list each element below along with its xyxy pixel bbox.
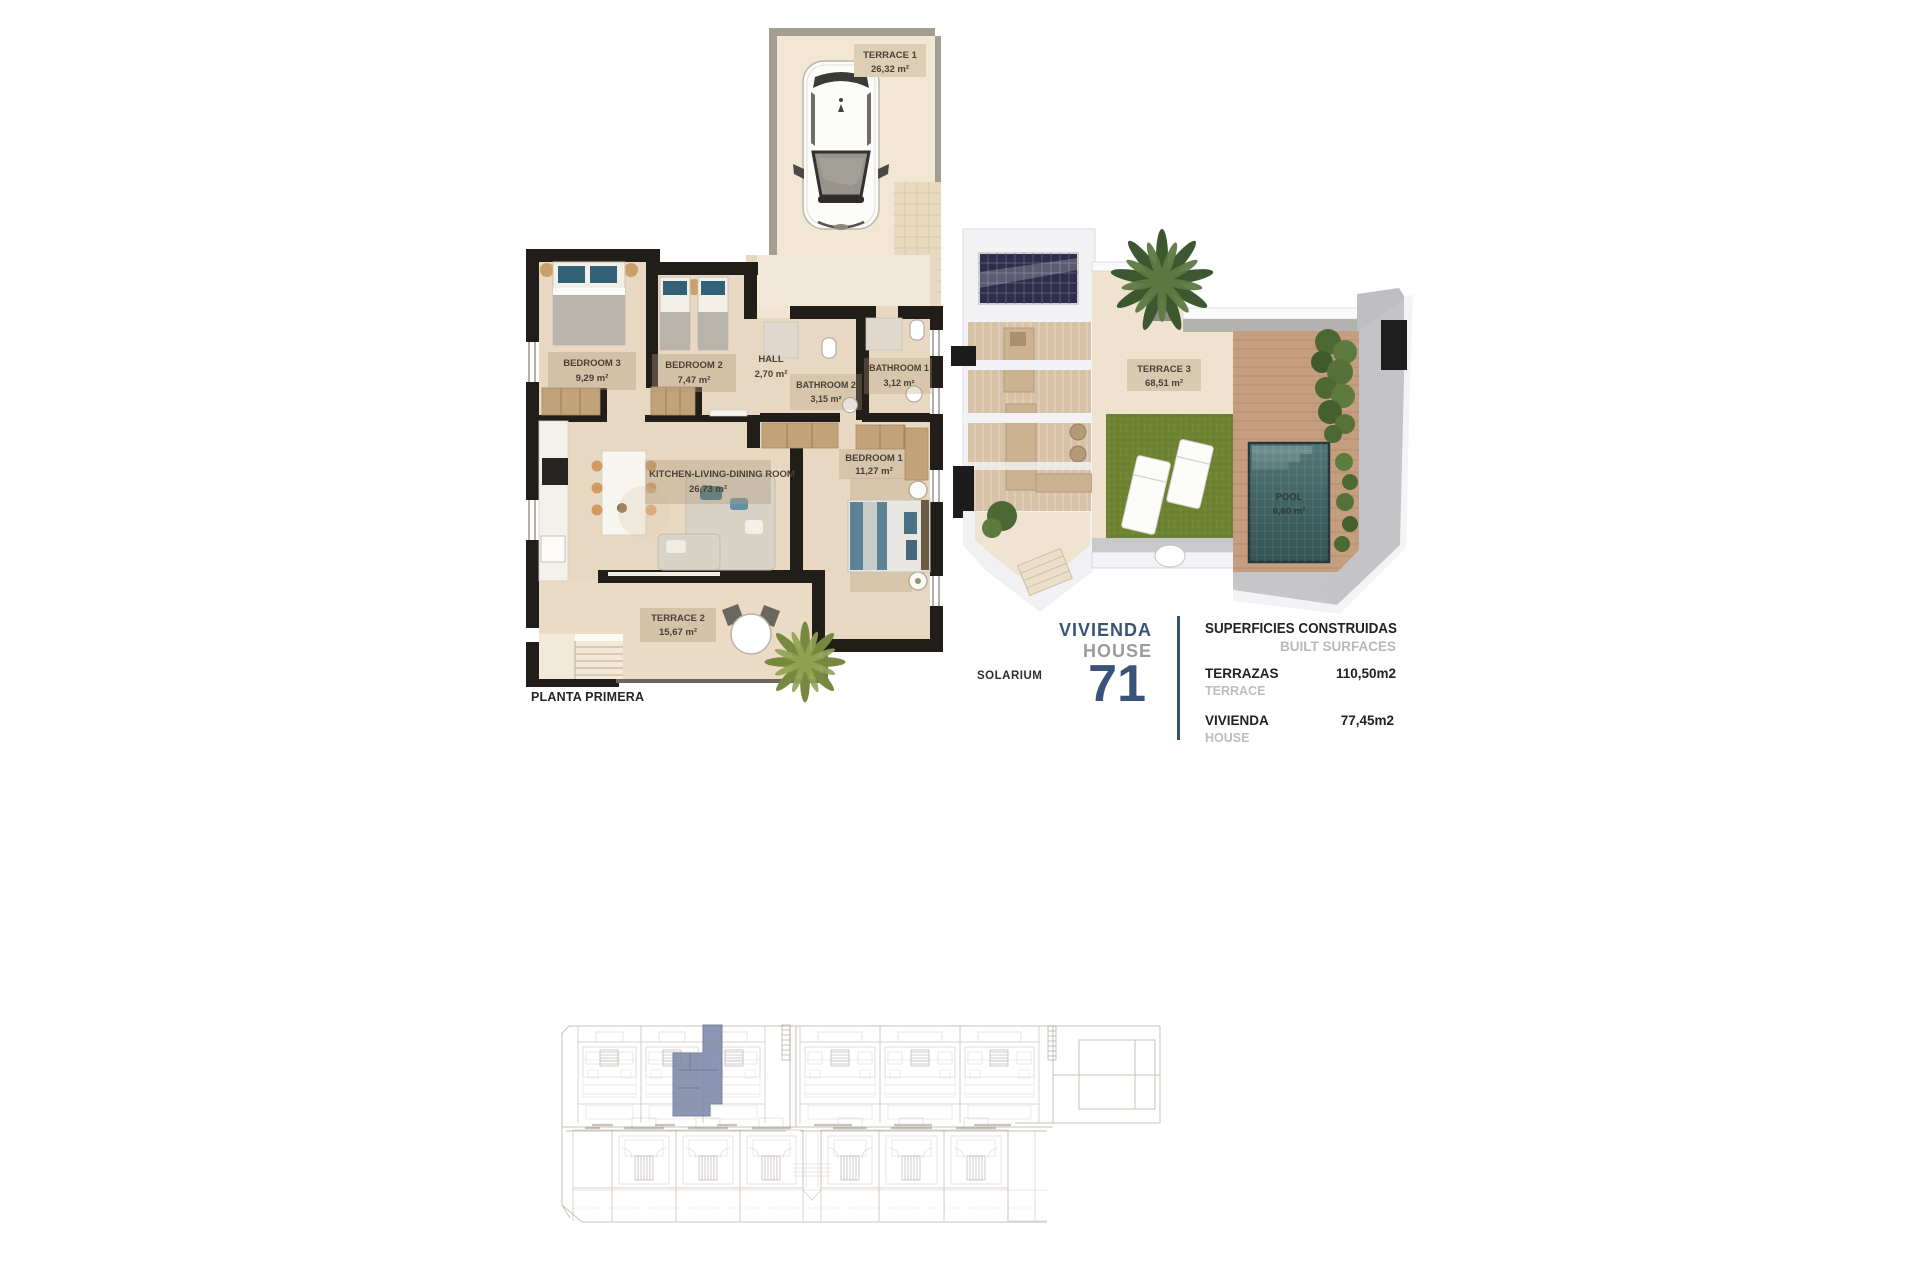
svg-text:SUPERFICIES CONSTRUIDAS: SUPERFICIES CONSTRUIDAS (1205, 621, 1397, 637)
svg-text:9,29 m²: 9,29 m² (576, 373, 609, 384)
svg-text:71: 71 (1088, 655, 1146, 713)
svg-text:BUILT SURFACES: BUILT SURFACES (1280, 639, 1396, 654)
svg-text:POOL: POOL (1276, 492, 1303, 503)
svg-text:26,32 m²: 26,32 m² (871, 64, 909, 75)
svg-text:PLANTA PRIMERA: PLANTA PRIMERA (531, 690, 644, 704)
svg-text:7,47 m²: 7,47 m² (678, 375, 711, 386)
svg-text:TERRACE: TERRACE (1205, 684, 1265, 698)
svg-text:KITCHEN-LIVING-DINING ROOM: KITCHEN-LIVING-DINING ROOM (649, 469, 795, 480)
svg-text:HOUSE: HOUSE (1205, 731, 1249, 745)
svg-text:26,73 m²: 26,73 m² (689, 484, 727, 495)
svg-text:BATHROOM 2: BATHROOM 2 (796, 380, 856, 390)
svg-text:3,12 m²: 3,12 m² (883, 378, 914, 388)
svg-text:TERRACE 1: TERRACE 1 (863, 50, 918, 61)
svg-text:HALL: HALL (758, 354, 784, 365)
svg-text:TERRACE 2: TERRACE 2 (651, 613, 705, 624)
svg-text:77,45m2: 77,45m2 (1341, 713, 1394, 728)
svg-text:3,15 m²: 3,15 m² (810, 394, 841, 404)
svg-text:68,51 m²: 68,51 m² (1145, 378, 1183, 389)
svg-text:BEDROOM 2: BEDROOM 2 (665, 360, 723, 371)
svg-text:11,27 m²: 11,27 m² (855, 466, 893, 477)
svg-text:BEDROOM 3: BEDROOM 3 (563, 358, 621, 369)
svg-text:SOLARIUM: SOLARIUM (977, 670, 1042, 682)
svg-text:VIVIENDA: VIVIENDA (1059, 620, 1152, 640)
svg-text:TERRACE 3: TERRACE 3 (1137, 364, 1191, 375)
svg-text:2,70 m²: 2,70 m² (755, 369, 788, 380)
svg-text:TERRAZAS: TERRAZAS (1205, 666, 1279, 681)
svg-text:BEDROOM 1: BEDROOM 1 (845, 453, 903, 464)
svg-text:15,67 m²: 15,67 m² (659, 627, 697, 638)
svg-text:BATHROOM 1: BATHROOM 1 (869, 363, 929, 373)
svg-text:VIVIENDA: VIVIENDA (1205, 713, 1269, 728)
svg-text:6,60 m²: 6,60 m² (1273, 506, 1306, 517)
svg-text:110,50m2: 110,50m2 (1336, 666, 1396, 681)
